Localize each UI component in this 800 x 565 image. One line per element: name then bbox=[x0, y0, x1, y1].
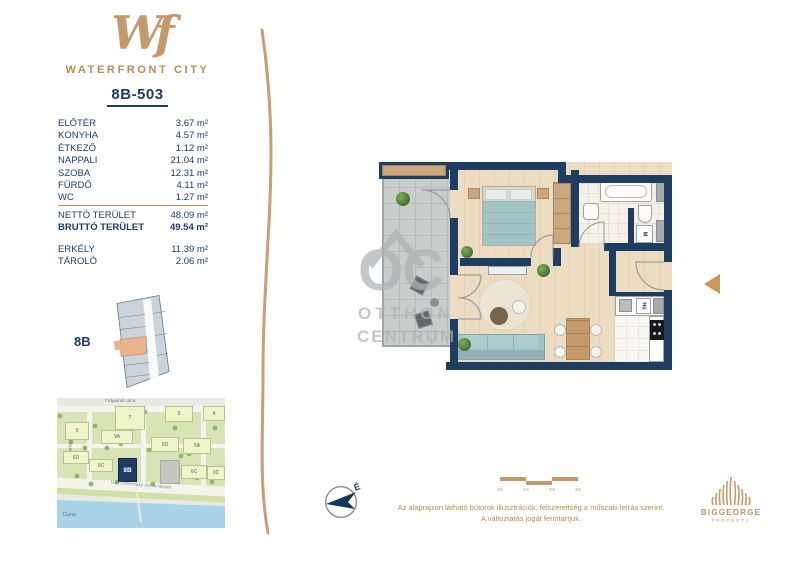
map-building-label: 7 bbox=[129, 415, 132, 421]
room-area: 1.27 m² bbox=[176, 192, 208, 204]
map-building-label: 6C bbox=[191, 469, 197, 475]
extra-label: ERKÉLY bbox=[58, 244, 95, 256]
brand-name: WATERFRONT CITY bbox=[40, 64, 235, 76]
room-area: 1.12 m² bbox=[176, 143, 208, 155]
map-building: 7 bbox=[115, 406, 145, 430]
unit-id: 8B-503 bbox=[107, 86, 167, 107]
disclaimer-line2: A változtatás jogát fenntartjuk. bbox=[381, 514, 681, 525]
gold-divider bbox=[58, 205, 208, 206]
developer-brand: BIGGEORGE bbox=[685, 508, 777, 517]
table-row: NAPPALI21.04 m² bbox=[58, 155, 208, 167]
map-building-label: 5 bbox=[178, 411, 181, 417]
map-building-label: 3C bbox=[213, 470, 219, 476]
map-building-label: 6D bbox=[162, 442, 168, 448]
otthon-centrum-watermark: OC OTTHON CENTRUM bbox=[356, 216, 462, 356]
map-building-label: 5A bbox=[194, 443, 200, 449]
scale-tick: 0m bbox=[497, 487, 503, 492]
total-label: NETTÓ TERÜLET bbox=[58, 210, 136, 222]
table-row: WC1.27 m² bbox=[58, 192, 208, 204]
map-building-label: 9A bbox=[114, 434, 120, 440]
room-label: SZOBA bbox=[58, 168, 90, 180]
room-label: FÜRDŐ bbox=[58, 180, 92, 192]
table-row: ERKÉLY11.39 m² bbox=[58, 244, 208, 256]
disclaimer: Az alaprajzon látható bútorok illusztrác… bbox=[381, 503, 681, 524]
next-page-arrow[interactable] bbox=[704, 274, 720, 294]
room-label: NAPPALI bbox=[58, 155, 97, 167]
map-building-label: 6D bbox=[73, 455, 79, 461]
total-label: BRUTTÓ TERÜLET bbox=[58, 222, 144, 234]
key-plan-building-label: 8B bbox=[74, 334, 91, 349]
brochure-page: { "colors": {"accent_gold": "#bf8c52", "… bbox=[0, 0, 800, 565]
room-area: 4.11 m² bbox=[176, 180, 208, 192]
waterfront-logo-icon: Wf bbox=[104, 8, 174, 58]
map-building-highlighted: 8B bbox=[118, 458, 137, 482]
total-area: 48.09 m² bbox=[171, 210, 209, 222]
room-area: 3.67 m² bbox=[176, 118, 208, 130]
map-building: 9C bbox=[89, 459, 113, 472]
table-row: KONYHA4.57 m² bbox=[58, 130, 208, 142]
watermark-mark: OC bbox=[358, 242, 443, 300]
extra-area: 2.06 m² bbox=[176, 256, 208, 268]
scale-bar-segment bbox=[552, 477, 578, 481]
scale-bar-segment bbox=[526, 481, 552, 485]
scale-tick: 2m bbox=[549, 487, 555, 492]
map-river-label: Duna bbox=[63, 512, 76, 518]
totals-table: NETTÓ TERÜLET48.09 m² BRUTTÓ TERÜLET49.5… bbox=[58, 210, 208, 235]
disclaimer-line1: Az alaprajzon látható bútorok illusztrác… bbox=[381, 503, 681, 514]
room-label: ELŐTÉR bbox=[58, 118, 96, 130]
map-street-top-label: Folyamőr utca bbox=[105, 399, 135, 404]
map-building-label: 9C bbox=[98, 463, 104, 469]
total-area: 49.54 m² bbox=[170, 222, 208, 234]
watermark-line2: CENTRUM bbox=[357, 327, 456, 347]
extras-table: ERKÉLY11.39 m² TÁROLÓ2.06 m² bbox=[58, 244, 208, 269]
map-building: 9A bbox=[101, 430, 133, 444]
map-building: 9 bbox=[65, 422, 89, 440]
scale-tick: 3m bbox=[575, 487, 581, 492]
table-row: ELŐTÉR3.67 m² bbox=[58, 118, 208, 130]
room-area: 4.57 m² bbox=[176, 130, 208, 142]
map-building: 4 bbox=[203, 406, 225, 421]
developer-brand-sub: PROPERTY bbox=[685, 518, 777, 523]
map-building-label: 8B bbox=[123, 467, 131, 474]
unit-id-wrap: 8B-503 bbox=[40, 86, 235, 107]
room-area-table: ELŐTÉR3.67 m² KONYHA4.57 m² ÉTKEZŐ1.12 m… bbox=[58, 118, 208, 205]
key-plan-highlighted-unit bbox=[120, 337, 147, 357]
biggeorge-crown-icon bbox=[711, 474, 751, 506]
map-building: 6D bbox=[63, 451, 89, 464]
extra-area: 11.39 m² bbox=[171, 244, 208, 256]
map-building: 3C bbox=[207, 466, 225, 480]
room-label: WC bbox=[58, 192, 74, 204]
room-label: KONYHA bbox=[58, 130, 98, 142]
map-building: 5A bbox=[183, 438, 211, 454]
table-row: FÜRDŐ4.11 m² bbox=[58, 180, 208, 192]
map-building: 6D bbox=[151, 437, 179, 452]
map-building-label: 9 bbox=[76, 428, 79, 434]
extra-label: TÁROLÓ bbox=[58, 256, 97, 268]
map-building-label: 4 bbox=[213, 411, 216, 417]
table-row: TÁROLÓ2.06 m² bbox=[58, 256, 208, 268]
scale-tick: 1m bbox=[523, 487, 529, 492]
watermark-line1: OTTHON bbox=[358, 304, 454, 324]
map-building: 5 bbox=[165, 406, 193, 422]
room-area: 12.31 m² bbox=[171, 168, 209, 180]
map-building-unlabeled bbox=[160, 460, 180, 484]
table-row: NETTÓ TERÜLET48.09 m² bbox=[58, 210, 208, 222]
gold-separator-curve bbox=[238, 0, 302, 565]
table-row: BRUTTÓ TERÜLET49.54 m² bbox=[58, 222, 208, 234]
map-building: 6C bbox=[181, 465, 207, 479]
table-row: SZOBA12.31 m² bbox=[58, 168, 208, 180]
scale-bar-segment bbox=[500, 477, 526, 481]
location-map: Folyamőr utca Matróz utca 9 7 5 4 9A 6D … bbox=[57, 398, 225, 528]
table-row: ÉTKEZŐ1.12 m² bbox=[58, 143, 208, 155]
key-plan-diagram bbox=[103, 292, 175, 390]
room-label: ÉTKEZŐ bbox=[58, 143, 96, 155]
room-area: 21.04 m² bbox=[171, 155, 209, 167]
